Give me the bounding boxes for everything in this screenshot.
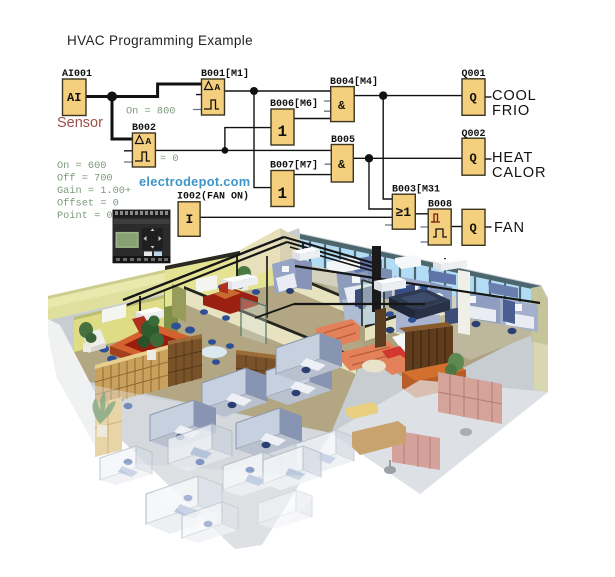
- svg-text:1: 1: [278, 123, 288, 141]
- svg-text:1: 1: [278, 185, 288, 203]
- svg-text:Point = 0: Point = 0: [57, 210, 113, 222]
- svg-text:&: &: [338, 99, 346, 113]
- svg-text:B005: B005: [331, 135, 355, 146]
- svg-text:I002(FAN ON): I002(FAN ON): [177, 191, 249, 203]
- svg-text:Off = 700: Off = 700: [57, 173, 113, 185]
- svg-text:Q: Q: [470, 91, 477, 105]
- svg-text:Q002: Q002: [462, 129, 486, 140]
- svg-text:B001[M1]: B001[M1]: [201, 68, 249, 80]
- svg-text:A: A: [146, 136, 152, 147]
- svg-text:Q: Q: [470, 152, 477, 166]
- svg-text:COOL: COOL: [492, 88, 537, 104]
- svg-text:B002: B002: [132, 123, 156, 134]
- svg-text:&: &: [338, 158, 346, 172]
- svg-text:HEAT: HEAT: [492, 150, 533, 166]
- svg-text:On = 800: On = 800: [126, 106, 175, 118]
- svg-text:= 0: = 0: [160, 153, 179, 165]
- svg-text:Q001: Q001: [462, 69, 486, 80]
- svg-text:Sensor: Sensor: [57, 115, 103, 131]
- svg-text:B004[M4]: B004[M4]: [330, 76, 378, 88]
- svg-text:Offset = 0: Offset = 0: [57, 198, 119, 210]
- svg-text:HVAC Programming Example: HVAC Programming Example: [67, 33, 253, 48]
- svg-text:A: A: [215, 82, 221, 93]
- svg-text:B007[M7]: B007[M7]: [270, 160, 318, 172]
- svg-text:B008: B008: [428, 200, 452, 211]
- svg-text:electrodepot.com: electrodepot.com: [139, 174, 250, 189]
- svg-text:≥1: ≥1: [396, 205, 412, 220]
- svg-text:AI001: AI001: [62, 69, 92, 80]
- svg-text:Gain = 1.00+: Gain = 1.00+: [57, 185, 131, 197]
- svg-text:FAN: FAN: [494, 220, 525, 236]
- svg-text:On = 600: On = 600: [57, 160, 106, 172]
- svg-text:CALOR: CALOR: [492, 165, 546, 181]
- svg-text:B006[M6]: B006[M6]: [270, 98, 318, 110]
- svg-text:I: I: [186, 212, 194, 227]
- svg-text:B003[M31: B003[M31: [392, 184, 440, 196]
- svg-text:FRIO: FRIO: [492, 103, 530, 119]
- svg-text:Q: Q: [470, 222, 477, 236]
- svg-text:AI: AI: [67, 91, 81, 105]
